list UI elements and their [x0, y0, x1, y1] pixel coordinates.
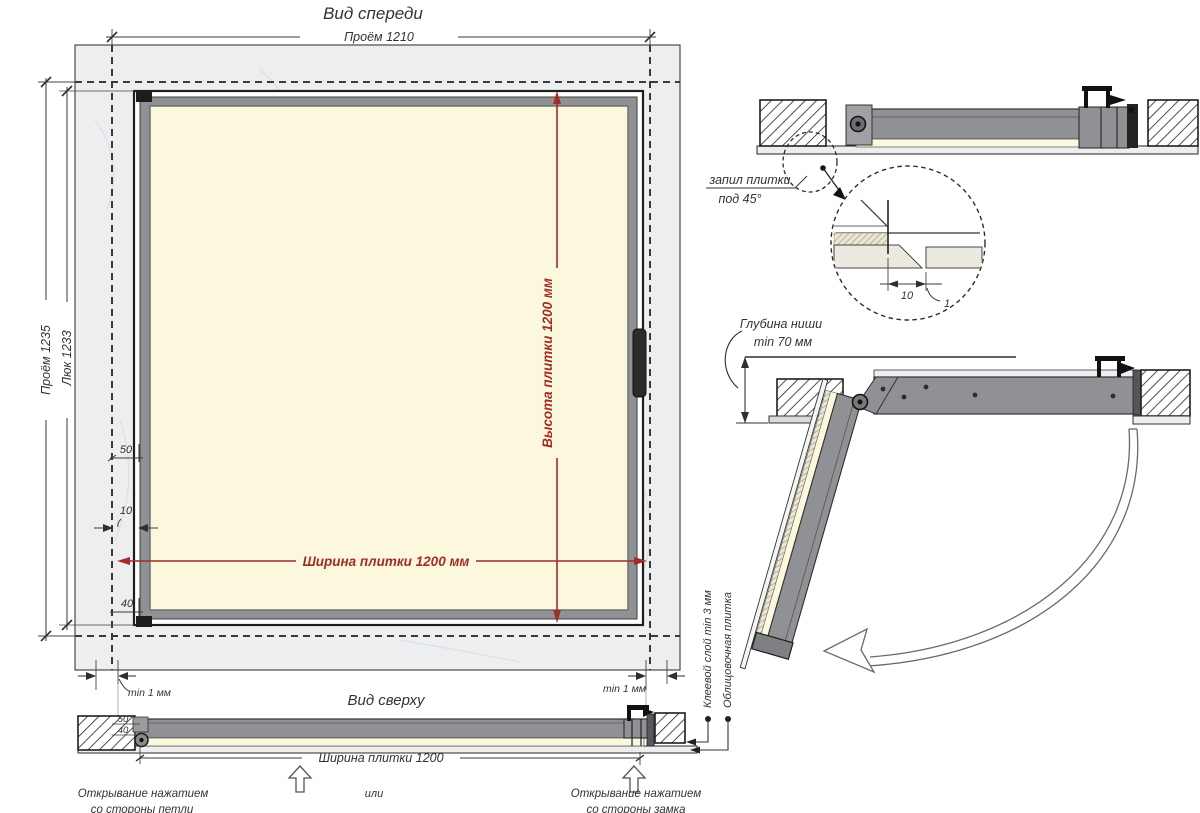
open-hinge-pin — [858, 400, 863, 405]
caption-open-hinge-1: Открывание нажатием — [78, 788, 209, 800]
tile-cut-label-1: запил плитки — [709, 173, 791, 187]
layer-labels: Клеевой слой min 3 мм Облицовочная плитк… — [686, 590, 734, 754]
niche-depth-dim — [736, 357, 768, 423]
niche-depth-leader — [725, 331, 742, 388]
open-door — [740, 379, 865, 680]
dim-50-top-label: 50 — [118, 714, 129, 725]
hinge-mark-top — [136, 92, 152, 102]
top-view-title: Вид сверху — [348, 692, 426, 709]
dim-opening-width: Проём 1210 — [106, 29, 656, 45]
hatch-technical-drawing: Вид спереди Проём 1210 — [0, 0, 1200, 813]
dim-tile-height-label: Высота плитки 1200 мм — [540, 278, 555, 448]
front-view: Вид спереди Проём 1210 — [38, 4, 685, 699]
dim-tile-width-label: Ширина плитки 1200 мм — [303, 554, 470, 569]
section-wall-right — [1148, 100, 1198, 146]
section-lock — [1079, 86, 1138, 148]
tile-cut-label: запил плитки под 45° — [706, 173, 807, 206]
press-arrow-hinge-side — [289, 766, 311, 792]
dim-hatch-height-label: Люк 1233 — [60, 330, 74, 386]
dim-40-front-label: 40 — [121, 598, 134, 610]
dim-40-top-label: 40 — [118, 725, 129, 736]
caption-open-hinge-2: со стороны петли — [91, 804, 194, 813]
open-wall-right-plate — [1133, 416, 1190, 424]
front-view-title: Вид спереди — [323, 4, 423, 23]
caption-or: или — [365, 788, 383, 800]
detail-dim-1-label: 1 — [944, 298, 950, 310]
dim-10-front-label: 10 — [120, 505, 133, 517]
dim-opening-width-label: Проём 1210 — [344, 30, 414, 44]
tile-layer-label: Облицовочная плитка — [722, 592, 734, 708]
dim-min-gap-right-label: min 1 мм — [603, 683, 646, 695]
hinge-block — [133, 717, 148, 732]
frame-bar — [874, 377, 1137, 414]
tile-cut-label-2: под 45° — [718, 192, 761, 206]
dim-opening-height-label: Проём 1235 — [39, 325, 53, 395]
door-profile-bar — [135, 719, 647, 738]
section-hinge-pin — [855, 121, 860, 126]
glue-layer-label: Клеевой слой min 3 мм — [702, 590, 714, 708]
detail-dim-10-label: 10 — [901, 290, 914, 302]
dim-50-front-label: 50 — [120, 444, 133, 456]
door-tile-strip — [142, 738, 644, 746]
niche-depth-label-1: Глубина ниши — [740, 317, 822, 331]
open-wall-right — [1141, 370, 1190, 416]
caption-open-lock-2: со стороны замка — [586, 804, 685, 813]
hinge-pin — [139, 738, 143, 742]
hinge-mark-bottom — [136, 616, 152, 627]
niche-depth-label-2: min 70 мм — [754, 335, 813, 349]
drawing-svg: Вид спереди Проём 1210 — [0, 0, 1200, 813]
dim-min-gap-left-label: min 1 мм — [128, 687, 171, 699]
closed-section-view: запил плитки под 45° — [706, 86, 1198, 320]
detail-circle: 10 1 — [831, 166, 985, 320]
dim-tile-width-top-label: Ширина плитки 1200 — [318, 751, 443, 765]
caption-open-lock-1: Открывание нажатием — [571, 788, 702, 800]
wall-block-right — [655, 713, 685, 743]
swing-arc-arrow — [824, 429, 1138, 672]
detail-leader-arrow — [833, 187, 846, 200]
open-frame-end — [1133, 370, 1141, 415]
latch-handle — [633, 329, 646, 397]
open-section-view: Глубина ниши min 70 мм — [725, 317, 1190, 679]
